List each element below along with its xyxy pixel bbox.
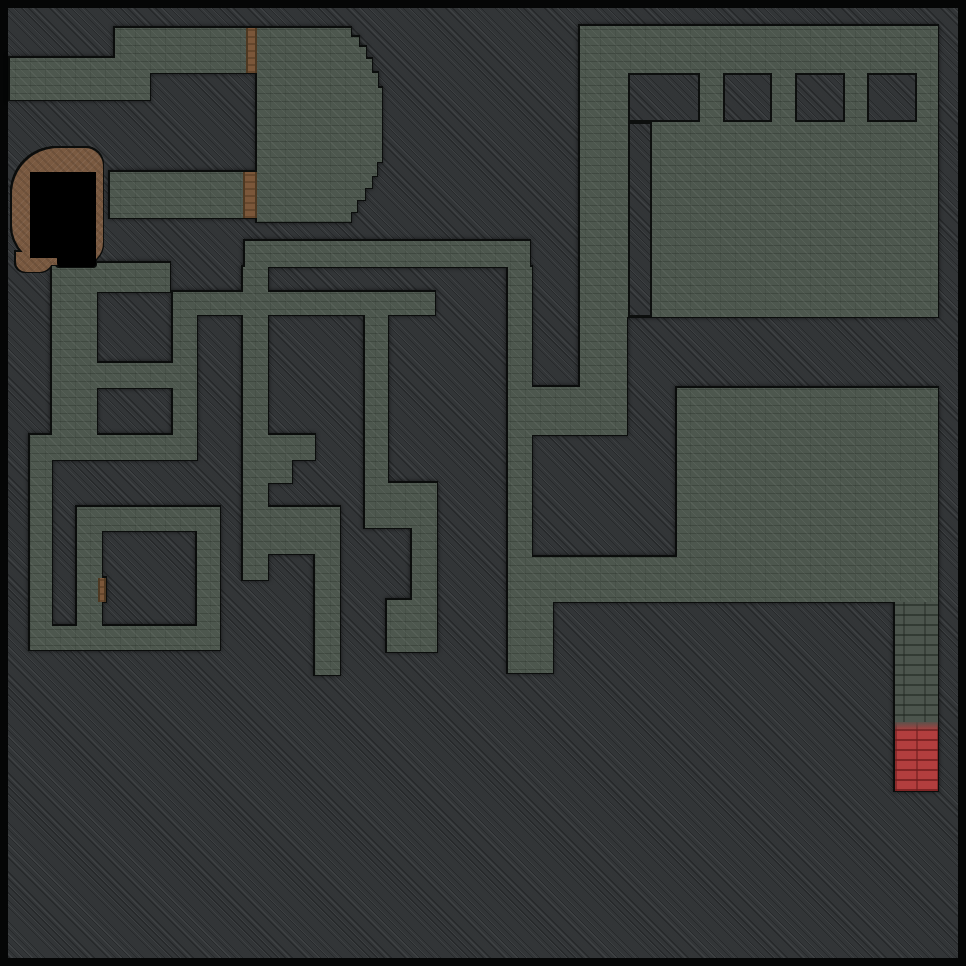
dirt-layer	[0, 0, 966, 966]
cave-void	[30, 172, 96, 258]
cave-void-tail	[57, 258, 96, 267]
dungeon-map-canvas[interactable]	[0, 0, 966, 966]
